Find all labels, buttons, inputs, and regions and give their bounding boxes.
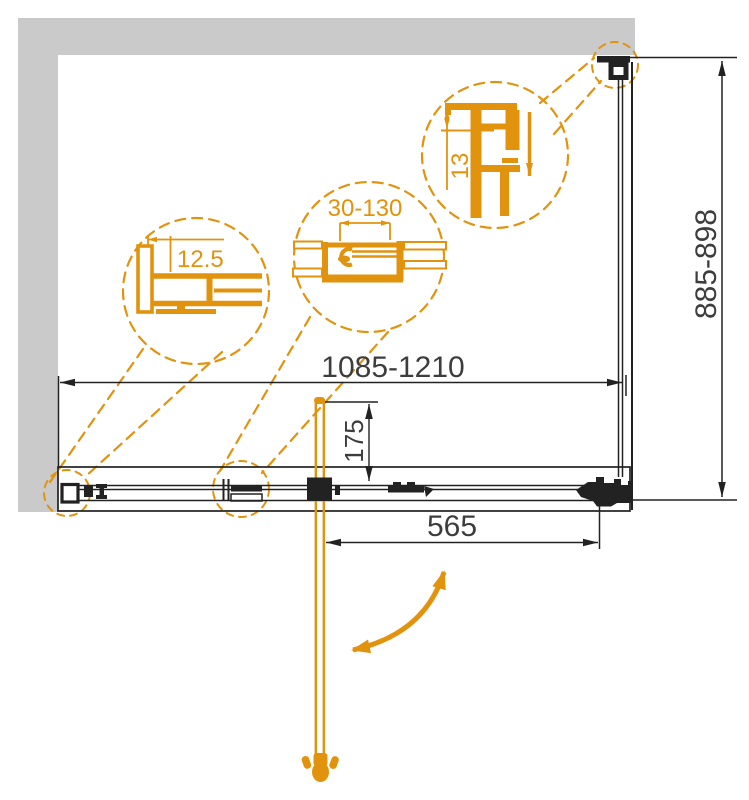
dim-label-detail-left: 12.5 bbox=[177, 246, 224, 273]
dim-label-detail-right: 13 bbox=[447, 153, 474, 180]
track-carriage bbox=[388, 482, 434, 497]
wall-left bbox=[18, 18, 58, 512]
profile-section-adjustable bbox=[293, 241, 446, 283]
door-handle bbox=[301, 397, 340, 782]
detail-profile-left: 12.5 bbox=[138, 236, 262, 312]
leader-line bbox=[540, 58, 594, 103]
track-roller bbox=[84, 484, 107, 499]
track-mid-guide bbox=[224, 479, 263, 501]
dim-label-handle-offset: 175 bbox=[339, 419, 369, 462]
wall-bracket-box bbox=[611, 65, 626, 78]
door-swing-arrow bbox=[353, 572, 444, 650]
side-panel bbox=[597, 56, 632, 510]
dim-handle-offset: 175 bbox=[318, 402, 378, 481]
technical-drawing-page: 1085-1210 885-898 175 565 12.5 bbox=[0, 0, 749, 800]
leader-line bbox=[220, 317, 310, 471]
handle-knob bbox=[301, 753, 340, 782]
leader-line bbox=[554, 81, 601, 134]
track-corner-joint bbox=[576, 477, 631, 507]
wall-top bbox=[18, 18, 635, 55]
bottom-track bbox=[58, 467, 631, 511]
leader-line bbox=[50, 349, 143, 482]
detail-profile-right: 13 bbox=[441, 104, 530, 218]
track-end-cap bbox=[62, 485, 78, 503]
dim-door-width: 565 bbox=[326, 500, 600, 549]
dim-label-overall-height: 885-898 bbox=[690, 209, 723, 319]
dim-label-overall-width: 1085-1210 bbox=[321, 351, 464, 384]
detail-profile-middle: 30-130 bbox=[293, 195, 446, 283]
dim-label-detail-middle: 30-130 bbox=[328, 195, 403, 222]
wall-bracket-bar bbox=[597, 56, 630, 63]
handle-bar bbox=[316, 400, 324, 760]
track-slider-block bbox=[307, 478, 340, 502]
dim-overall-height: 885-898 bbox=[630, 58, 737, 501]
shower-door-technical-drawing: 1085-1210 885-898 175 565 12.5 bbox=[0, 0, 749, 800]
leader-line bbox=[85, 352, 222, 477]
dim-label-door-width: 565 bbox=[427, 510, 477, 543]
